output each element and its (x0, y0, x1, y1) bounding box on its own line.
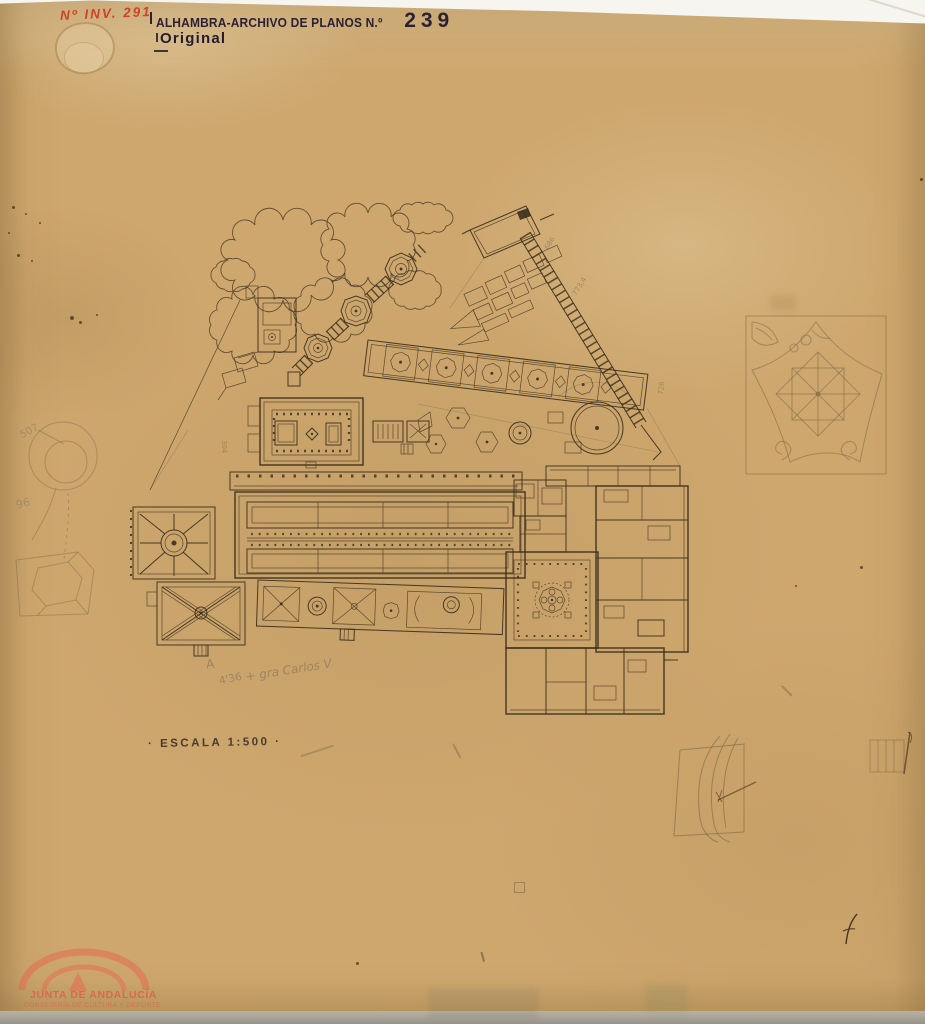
ink-speck (79, 321, 82, 324)
junta-andalucia-logo (8, 944, 158, 992)
pencil-number: 773,4 (571, 275, 589, 297)
west-radial-parterre (131, 507, 215, 579)
archive-stamp-text: ALHAMBRA-ARCHIVO DE PLANOS N.º (156, 15, 383, 30)
ink-speck (860, 566, 863, 569)
bracket-pencil-sketch (660, 728, 800, 853)
stamp-mark (154, 50, 168, 52)
ink-speck (356, 962, 359, 965)
fountain-stair-chain (288, 246, 425, 386)
bottom-parterre-row (256, 580, 504, 646)
scanned-archive-sheet: Nº INV. 291 ALHAMBRA-ARCHIVO DE PLANOS N… (0, 0, 925, 1024)
court-fountain (533, 582, 571, 618)
original-stamp: Original (160, 30, 226, 47)
upper-terrace (150, 286, 296, 490)
smudge-stain (645, 985, 687, 1011)
pencil-number: 686 (543, 235, 557, 251)
palace-annex (373, 421, 429, 454)
ink-speck (17, 254, 20, 257)
stamp-mark (156, 33, 158, 42)
ink-speck (39, 222, 41, 224)
watermark-title: JUNTA DE ANDALUCÍA (30, 989, 157, 1001)
ink-speck (31, 260, 33, 262)
ink-speck (96, 314, 98, 316)
octagon-parterre-band (364, 340, 648, 410)
ink-speck (25, 213, 27, 215)
stamp-tick (150, 12, 152, 24)
pencil-square-mark (514, 882, 525, 893)
glue-ring-stain (64, 42, 104, 74)
ink-speck (920, 178, 923, 181)
archive-plan-number: 239 (404, 9, 454, 33)
upper-garden-plots (437, 245, 581, 352)
paper-crease (859, 0, 925, 18)
long-courtyard (235, 492, 525, 578)
pencil-number: 726 (657, 381, 666, 396)
pencil-number: 304 (220, 440, 228, 454)
tree-clouds (209, 202, 453, 363)
pencil-note-letter: A (205, 657, 215, 672)
ink-speck (70, 316, 74, 320)
smudge-stain (770, 295, 796, 311)
central-palace (248, 398, 363, 468)
ink-speck (12, 206, 15, 209)
smudge-stain (428, 988, 538, 1018)
corridor-band (230, 472, 522, 490)
southwest-x-parterre (147, 582, 245, 656)
plan-drawing: .k{stroke:#3c2f1c;fill:none;stroke-width… (118, 190, 698, 730)
ink-flourish-mark (838, 910, 864, 950)
watermark-subtitle: CONSEJERÍA DE CULTURA Y DEPORTE (24, 1002, 161, 1009)
edge-pencil-rectangle (864, 730, 920, 784)
ink-speck (795, 585, 797, 587)
ink-speck (8, 232, 10, 234)
right-building-complex (506, 466, 688, 714)
ornament-pencil-sketch (742, 312, 892, 480)
scale-stamp: · ESCALA 1:500 · (148, 736, 282, 750)
upper-enclosure (462, 206, 554, 258)
